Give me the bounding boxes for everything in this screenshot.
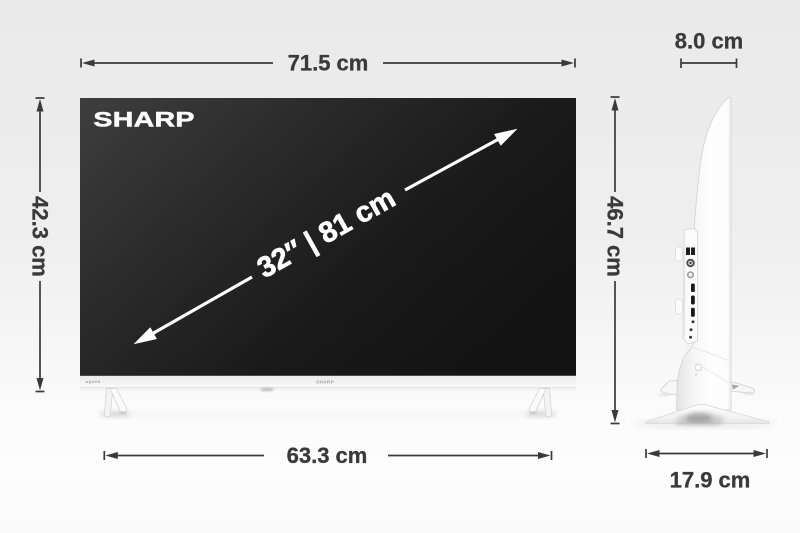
- svg-text:SHARP: SHARP: [316, 380, 334, 385]
- svg-text:AQUOS: AQUOS: [86, 380, 101, 384]
- svg-text:46.7 cm: 46.7 cm: [603, 196, 628, 277]
- svg-text:17.9 cm: 17.9 cm: [670, 468, 751, 493]
- svg-text:8.0 cm: 8.0 cm: [675, 29, 744, 54]
- svg-text:42.3 cm: 42.3 cm: [28, 196, 53, 277]
- svg-text:63.3 cm: 63.3 cm: [287, 443, 368, 468]
- svg-text:71.5 cm: 71.5 cm: [288, 51, 369, 76]
- svg-text:SHARP: SHARP: [93, 108, 194, 131]
